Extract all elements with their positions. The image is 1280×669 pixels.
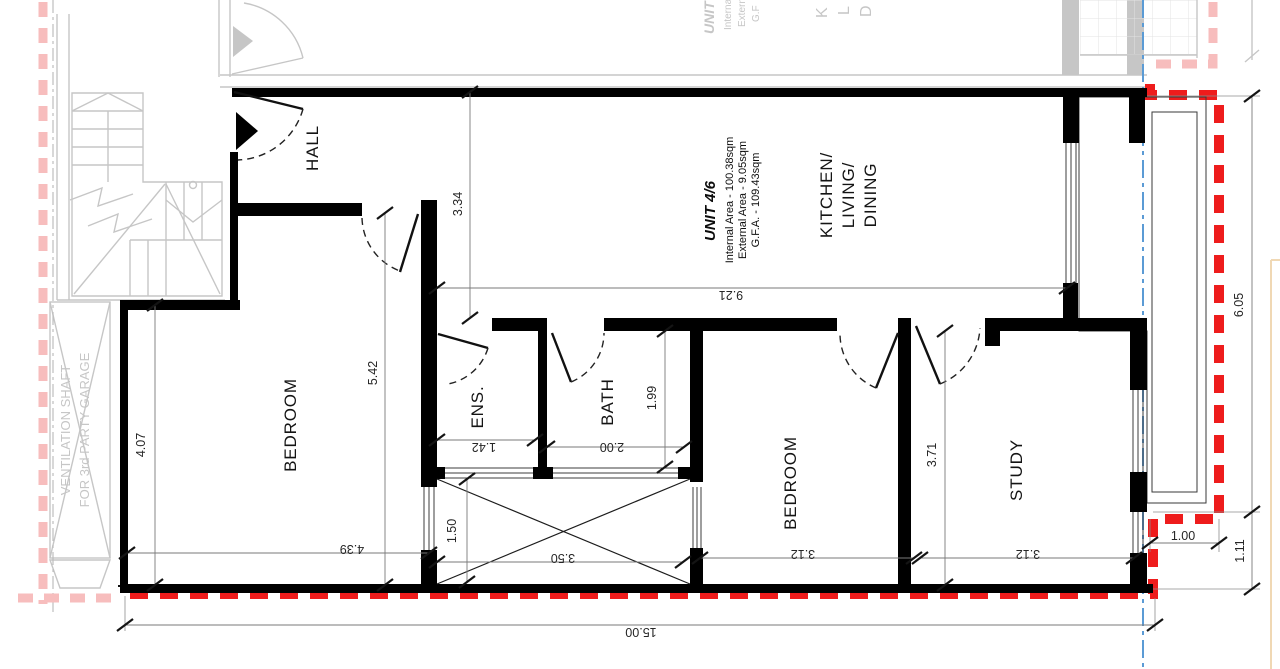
- room-label-study: STUDY: [1007, 439, 1026, 501]
- entrance-door-icon: [234, 92, 303, 160]
- room-label-ensuite: ENS.: [468, 385, 487, 428]
- dim-living-width: 9.21: [719, 288, 743, 302]
- dim-terrace-step-depth: 1.11: [1233, 539, 1247, 562]
- walls: [120, 88, 1153, 593]
- room-label-bedroom-right: BEDROOM: [781, 436, 800, 530]
- dim-bath-width: 2.00: [600, 440, 624, 454]
- adjacent-kitchen-k: K: [814, 7, 831, 18]
- unit-info: UNIT 4/6 Internal Area - 100.38sqm Exter…: [702, 137, 762, 264]
- room-label-bath: BATH: [598, 378, 617, 425]
- dim-bath-depth: 1.99: [645, 386, 659, 410]
- shaft-top-windows-icon: [445, 468, 678, 478]
- room-label-bedroom-left: BEDROOM: [281, 378, 300, 472]
- unit-internal-area: Internal Area - 100.38sqm: [724, 137, 736, 264]
- adjacent-unit-label: UNIT: [701, 0, 717, 34]
- site-boundary-red: [118, 84, 1219, 594]
- context-ventilation-shaft: VENTILATION SHAFT FOR 3rd PARTY GARAGE: [50, 302, 110, 588]
- unit-gfa: G.F.A. - 109.43sqm: [750, 153, 762, 248]
- room-label-hall: HALL: [303, 125, 322, 171]
- dimension-lines: [117, 86, 1260, 631]
- dim-ensuite-width: 1.42: [472, 440, 496, 454]
- dim-bedroom-right-width: 3.12: [791, 547, 815, 561]
- dim-balcony-depth: 6.05: [1232, 293, 1246, 317]
- context-stair: [57, 14, 225, 300]
- dim-bedroom-right-depth: 3.71: [925, 443, 939, 467]
- adjacent-unit-line1: Interna: [723, 0, 734, 30]
- adjacent-kitchen-l: L: [836, 6, 853, 15]
- gray-door-arrow-icon: [233, 26, 253, 57]
- dim-total-width: 15.00: [625, 625, 656, 639]
- vent-shaft-label-2: FOR 3rd PARTY GARAGE: [77, 352, 92, 507]
- vent-shaft-label-1: VENTILATION SHAFT: [58, 365, 73, 496]
- room-label-kitchen-2: LIVING/: [839, 162, 858, 228]
- floor-plan: VENTILATION SHAFT FOR 3rd PARTY GARAGE U…: [0, 0, 1280, 669]
- dim-study-width: 3.12: [1016, 547, 1040, 561]
- unit-external-area: External Area - 9.05sqm: [737, 141, 749, 259]
- doors: [234, 92, 980, 388]
- bath-door-icon: [552, 333, 604, 382]
- void-shaft: [437, 479, 690, 584]
- unit-name: UNIT 4/6: [702, 180, 719, 241]
- adjacent-unit-line3: G.F: [751, 5, 762, 22]
- shaft-side-windows-icon: [424, 487, 701, 550]
- study-door-icon: [916, 326, 980, 384]
- dim-hall-bedroom-depth: 5.42: [366, 361, 380, 385]
- boundary-lines: [18, 0, 1280, 669]
- bedroom-right-door-icon: [840, 333, 898, 388]
- room-label-kitchen-1: KITCHEN/: [817, 152, 836, 238]
- ensuite-door-icon: [438, 334, 488, 384]
- dim-bedroom-left-depth: 4.07: [134, 433, 148, 457]
- dim-shaft-width: 3.50: [551, 551, 575, 565]
- bedroom-left-door-icon: [362, 214, 418, 272]
- dim-shaft-depth: 1.50: [445, 519, 459, 543]
- dim-terrace-step-width: 1.00: [1171, 529, 1195, 543]
- study-window-icon: [1133, 390, 1143, 553]
- adjacent-kitchen-d: D: [858, 5, 875, 17]
- dim-living-depth: 3.34: [451, 192, 465, 216]
- dim-bedroom-left-width: 4.39: [340, 542, 364, 556]
- kitchen-east-window-icon: [1066, 143, 1076, 283]
- adjacent-unit-line2: Extern: [737, 0, 748, 27]
- context-adjacent-unit-top: UNIT Interna Extern G.F K L D: [219, 0, 1259, 87]
- room-label-kitchen-3: DINING: [861, 163, 880, 228]
